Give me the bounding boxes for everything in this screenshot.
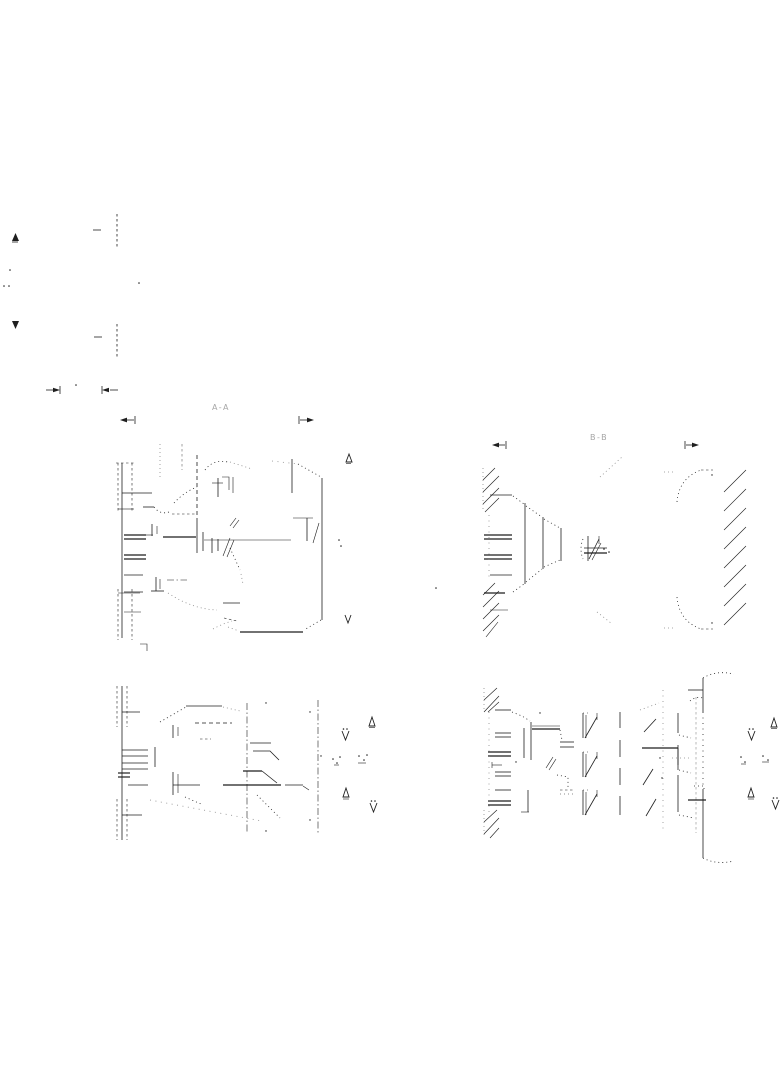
nozzle-tip-detail [581,536,610,561]
stepped-cone [513,496,561,592]
wall-section-hatched [664,470,746,629]
view-direction-left-icon [492,441,506,449]
section-label-a: A-A [212,403,230,412]
flange-hatched [483,468,512,637]
view-b-direction-arrows [492,441,699,449]
section-view-a [116,444,352,651]
section-arrow-up-icon [748,788,754,799]
body-plan [128,700,318,833]
section-label-b: B-B [590,433,608,442]
top-left-flange-fragment [3,214,140,358]
seat-details [583,713,597,815]
dimension-arrow-icon [102,386,118,394]
body-inner [512,712,574,812]
section-arrow-down-icon [748,728,755,740]
section-arrow-down-icon [345,615,351,623]
valve-body [140,444,319,651]
section-arrow-down-icon [370,800,377,812]
section-arrow-down-icon [12,321,19,329]
section-plane-marks [740,718,779,809]
section-arrow-up-icon [369,717,375,728]
flange-left [117,686,148,840]
outlet-cylinder [672,673,734,863]
flange-hatched [484,688,511,838]
section-arrow-down-icon [772,797,779,809]
section-arrow-up-icon [346,454,352,464]
technical-drawing: A-A [0,0,784,1066]
section-arrow-up-icon [12,233,19,242]
section-view-b [435,457,746,637]
plan-view-right [484,673,779,863]
drawing-sheet: A-A [0,0,784,1066]
bonnet-outline [228,464,322,632]
view-direction-right-icon [685,441,699,449]
flange-left [116,463,152,640]
section-arrow-up-icon [771,718,777,729]
plan-view-left [117,686,377,840]
dimension-arrow-icon [46,386,60,394]
view-direction-left-icon [120,416,135,424]
view-direction-right-icon [299,416,314,424]
section-arrow-down-icon [342,728,349,740]
section-plane-marks [320,717,377,812]
dimension-arrows [46,384,118,394]
mid-ribs [620,690,678,832]
section-arrow-up-icon [343,788,349,799]
view-a-direction-arrows [120,416,314,424]
